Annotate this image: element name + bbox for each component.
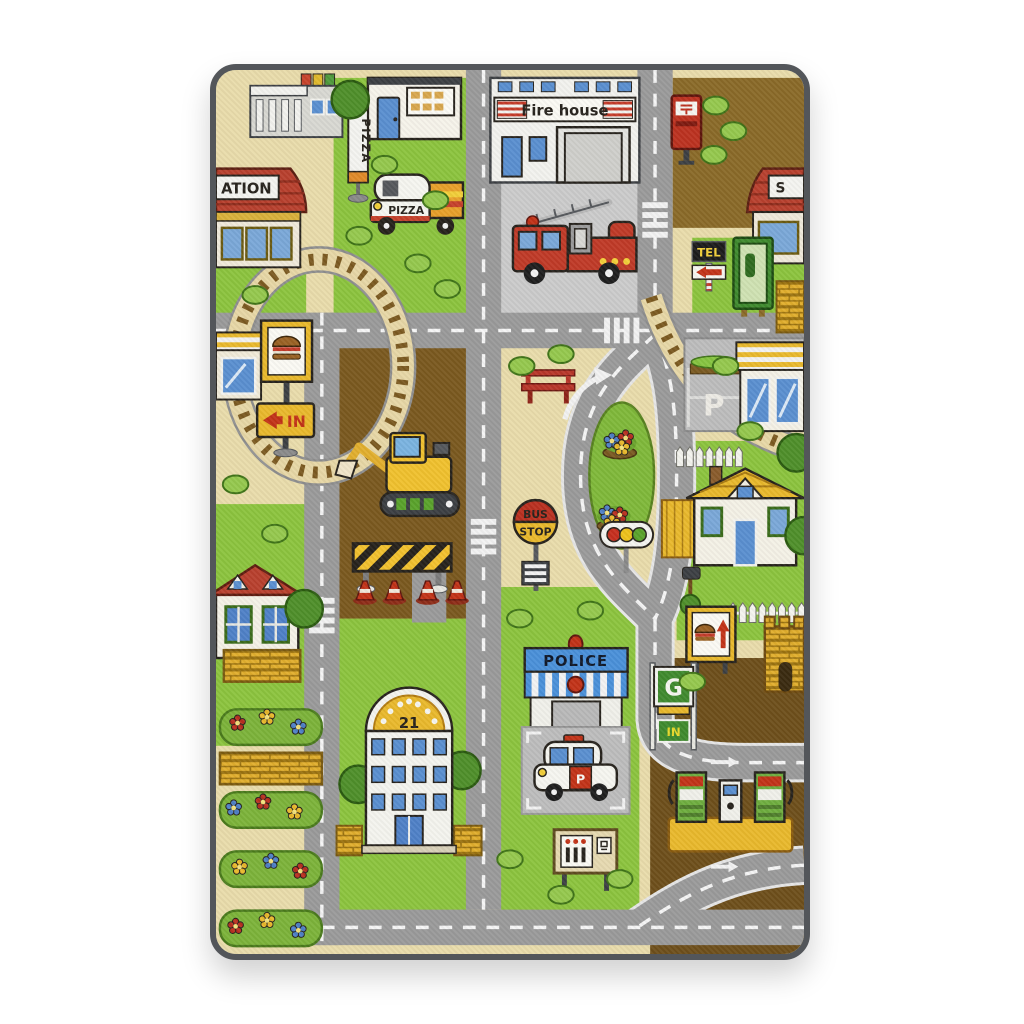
bush: [680, 673, 705, 691]
tree: [286, 590, 323, 627]
rug-art: BUS STOP: [216, 70, 804, 954]
bush: [607, 870, 632, 888]
bush: [223, 475, 248, 493]
fire-house-label: Fire house: [521, 102, 608, 119]
product-photo: BUS STOP: [0, 0, 1024, 1024]
bush: [713, 357, 738, 375]
gas-in-label: IN: [667, 725, 681, 739]
police-label: POLICE: [543, 653, 608, 670]
bush: [435, 280, 460, 298]
bush: [405, 254, 430, 272]
tree: [332, 81, 369, 118]
flower-garden: [220, 709, 322, 946]
pizza-truck-label: PIZZA: [388, 204, 424, 217]
green-light-icon: [633, 528, 647, 542]
bush: [578, 602, 603, 620]
bush: [737, 422, 762, 440]
bush: [721, 122, 746, 140]
bush: [346, 227, 371, 245]
bush: [548, 345, 573, 363]
parking-p-label: P: [703, 388, 725, 422]
hamburger-icon: [273, 336, 300, 359]
bush: [509, 357, 534, 375]
pizza-shop: [368, 78, 461, 139]
police-car: P: [522, 727, 630, 814]
bush: [372, 156, 397, 174]
hamburger-icon: [695, 624, 715, 640]
fire-house-building: Fire house: [490, 78, 639, 183]
stop-label: STOP: [519, 526, 551, 539]
play-rug: BUS STOP: [210, 64, 810, 960]
bush: [701, 146, 726, 164]
red-lamp-icon: [568, 677, 584, 693]
phone-booth: [733, 238, 772, 317]
bush: [703, 97, 728, 115]
tree: [778, 434, 804, 471]
police-station: POLICE: [525, 635, 628, 727]
bush: [242, 286, 267, 304]
station-right-label: S: [776, 180, 786, 196]
bush: [423, 191, 448, 209]
hotel-number-label: 21: [399, 715, 419, 732]
in-label: IN: [287, 412, 306, 431]
tel-label: TEL: [697, 245, 721, 259]
bus-label: BUS: [523, 508, 548, 521]
yellow-light-icon: [620, 528, 634, 542]
station-sign-label: ATION: [221, 180, 271, 197]
red-light-icon: [607, 528, 621, 542]
bush: [548, 886, 573, 904]
fuel-pump: [720, 780, 742, 821]
station-building: ATION: [216, 169, 306, 268]
castle-tower: [765, 617, 804, 692]
brick-wall: [777, 281, 804, 332]
left-shop: [216, 332, 261, 399]
police-car-p-label: P: [576, 772, 585, 787]
fuel-pumps: [669, 772, 792, 851]
pizza-pole-label: PIZZA: [359, 118, 372, 163]
bush: [262, 525, 287, 543]
bush: [497, 850, 522, 868]
corner-shop: [736, 342, 804, 440]
bush: [507, 610, 532, 628]
